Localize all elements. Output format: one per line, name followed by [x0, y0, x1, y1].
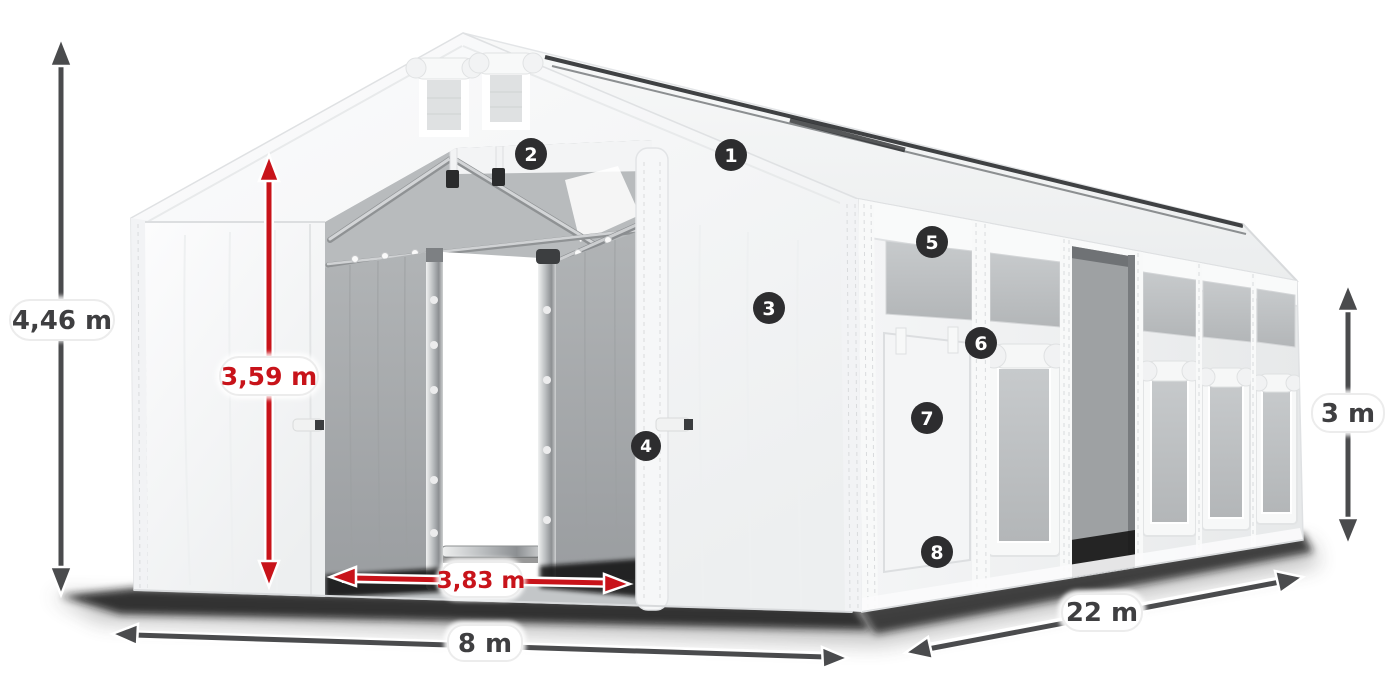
marker-number: 1	[724, 145, 737, 167]
side-window-2	[1137, 361, 1202, 536]
part-marker-4: 4	[631, 431, 661, 461]
dimension-total-height: 4,46 m	[6, 38, 118, 595]
part-marker-6: 6	[965, 327, 997, 359]
part-marker-3: 3	[753, 292, 785, 324]
arrow-head	[50, 567, 72, 595]
partition-mesh-left	[325, 252, 428, 596]
dimension-label: 22 m	[1066, 598, 1138, 628]
left-door-leaf	[145, 222, 325, 597]
arrow-head	[50, 38, 72, 66]
part-marker-1: 1	[715, 139, 747, 171]
dimension-label: 3,59 m	[221, 362, 317, 391]
side-window-1	[982, 344, 1068, 556]
part-marker-5: 5	[916, 226, 948, 258]
upper-panel	[1257, 289, 1295, 347]
side-door-open	[1071, 246, 1135, 600]
marker-number: 2	[524, 144, 537, 166]
door-hanger-strap	[896, 328, 906, 354]
arrow-head	[1337, 284, 1359, 311]
part-marker-7: 7	[911, 402, 943, 434]
upper-panel	[1143, 272, 1196, 337]
dimension-label: 8 m	[458, 629, 512, 659]
side-window-3	[1197, 368, 1255, 530]
dimension-label: 3 m	[1321, 399, 1375, 429]
dimension-side-height: 3 m	[1308, 284, 1388, 545]
side-door-panel	[884, 327, 970, 572]
arrow-head	[1337, 518, 1359, 545]
front-opening-interior	[321, 140, 652, 607]
marker-number: 5	[925, 232, 938, 254]
upper-panel	[1203, 281, 1251, 342]
part-marker-8: 8	[921, 536, 953, 568]
arrow-head	[112, 624, 138, 645]
dimension-label: 3,83 m	[437, 568, 526, 594]
arrow-head	[1275, 571, 1303, 593]
part-marker-2: 2	[515, 138, 547, 170]
open-passage	[443, 252, 540, 588]
marker-number: 7	[920, 408, 933, 430]
tent-dimension-diagram: 4,46 m 3,59 m 3,83 m 8 m	[0, 0, 1400, 700]
partition-post-left	[426, 248, 443, 590]
marker-number: 4	[640, 437, 652, 457]
side-window-4	[1251, 374, 1302, 524]
arrow-head	[905, 637, 933, 659]
ground-bar	[441, 546, 542, 557]
marker-number: 8	[930, 542, 943, 564]
upper-panel	[990, 253, 1060, 327]
dimension-label: 4,46 m	[12, 306, 112, 336]
door-hanger-strap	[948, 327, 958, 353]
arrow-head	[822, 647, 848, 668]
marker-number: 6	[974, 333, 987, 355]
marker-number: 3	[762, 298, 775, 320]
